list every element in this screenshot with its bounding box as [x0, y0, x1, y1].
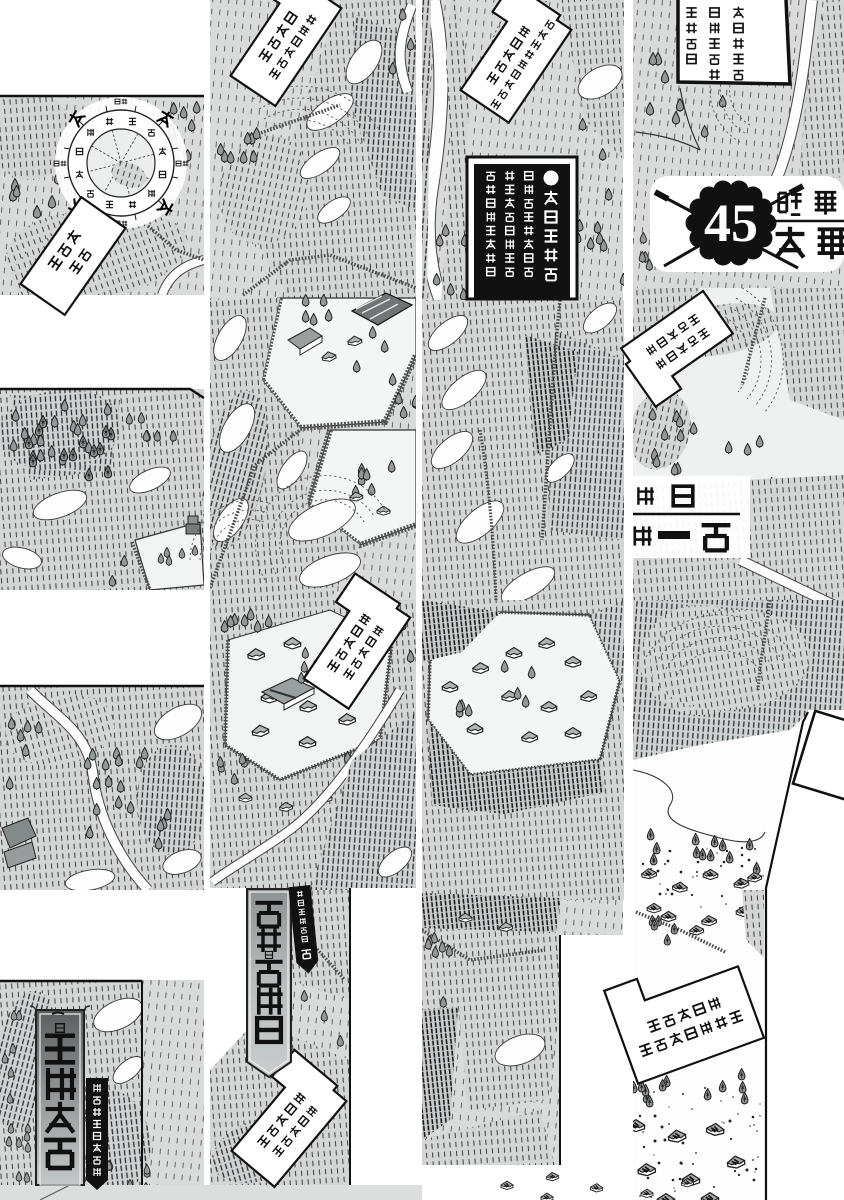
- svg-text:45: 45: [704, 193, 758, 253]
